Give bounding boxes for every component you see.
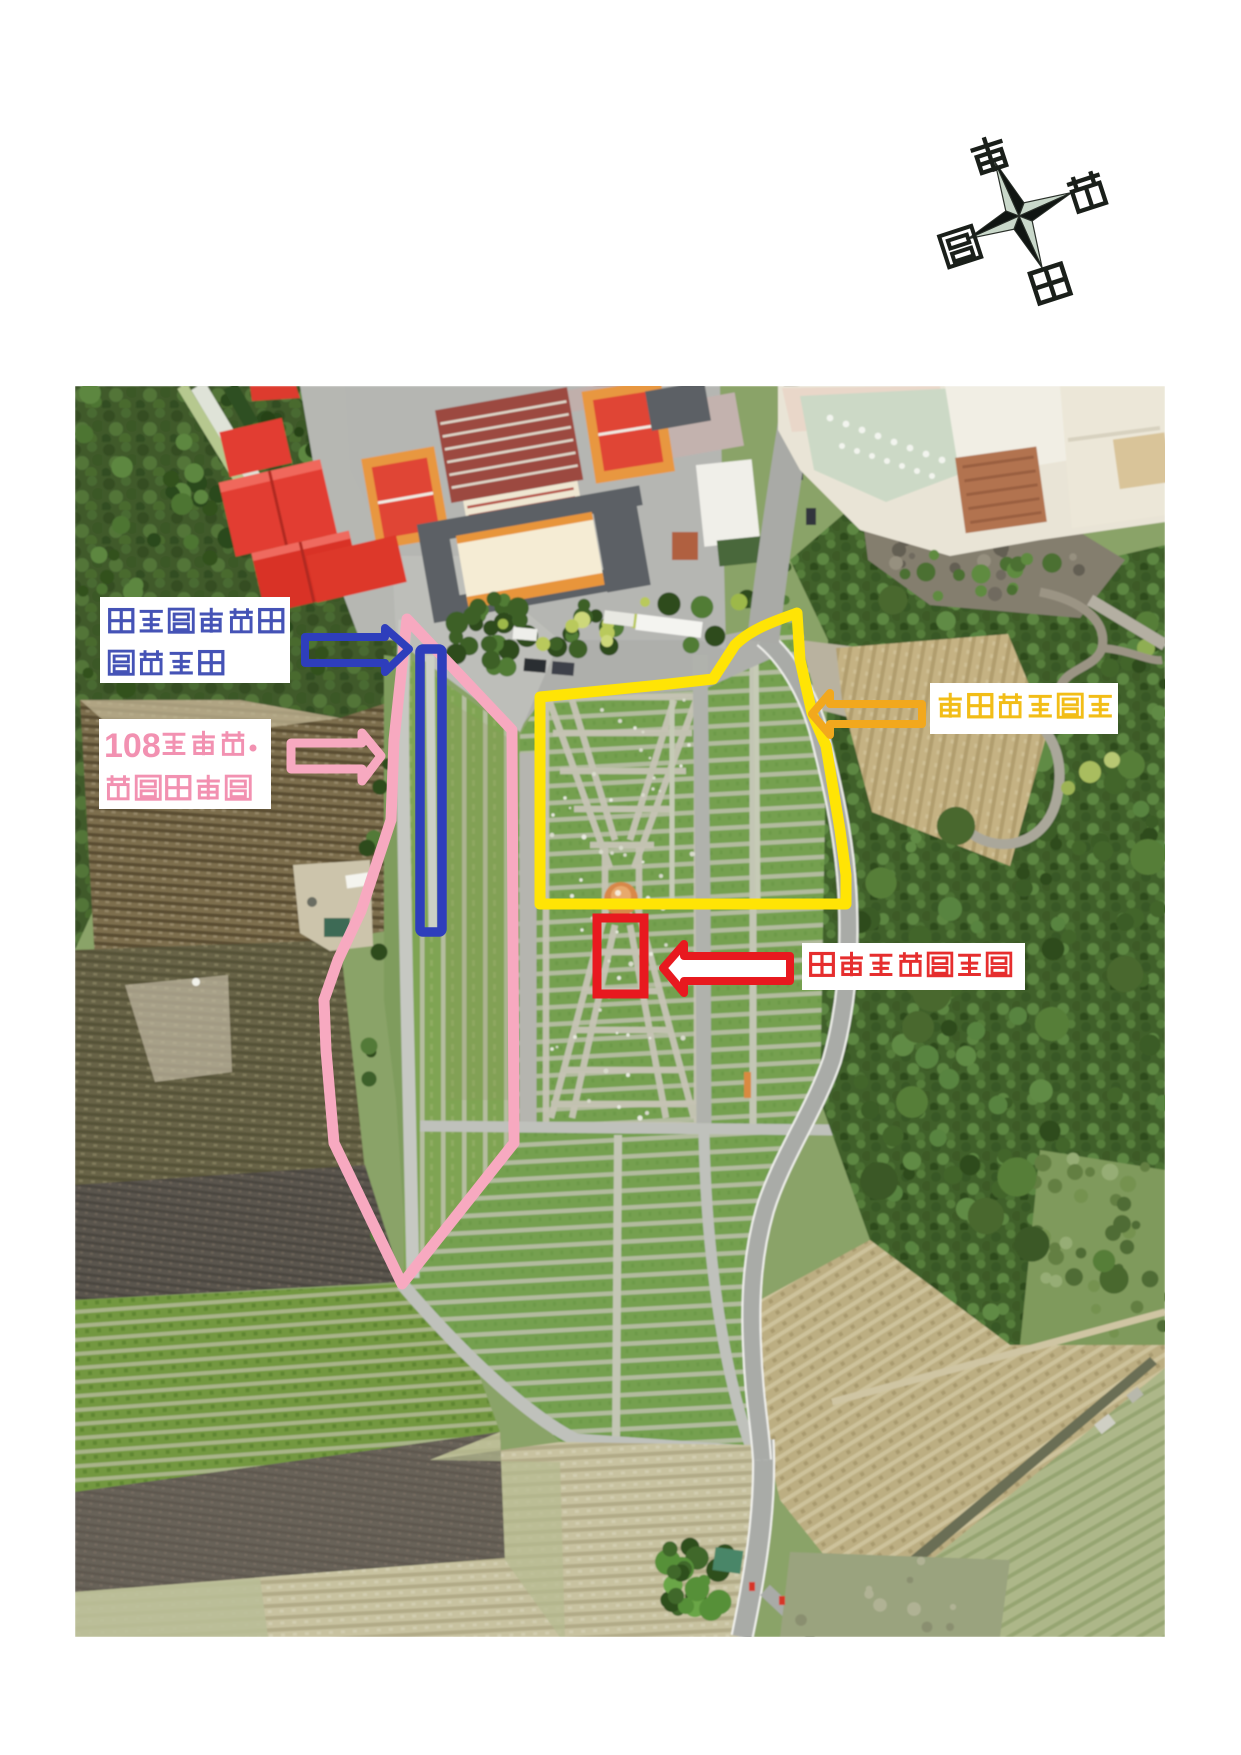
svg-text:108: 108 [104,727,161,765]
